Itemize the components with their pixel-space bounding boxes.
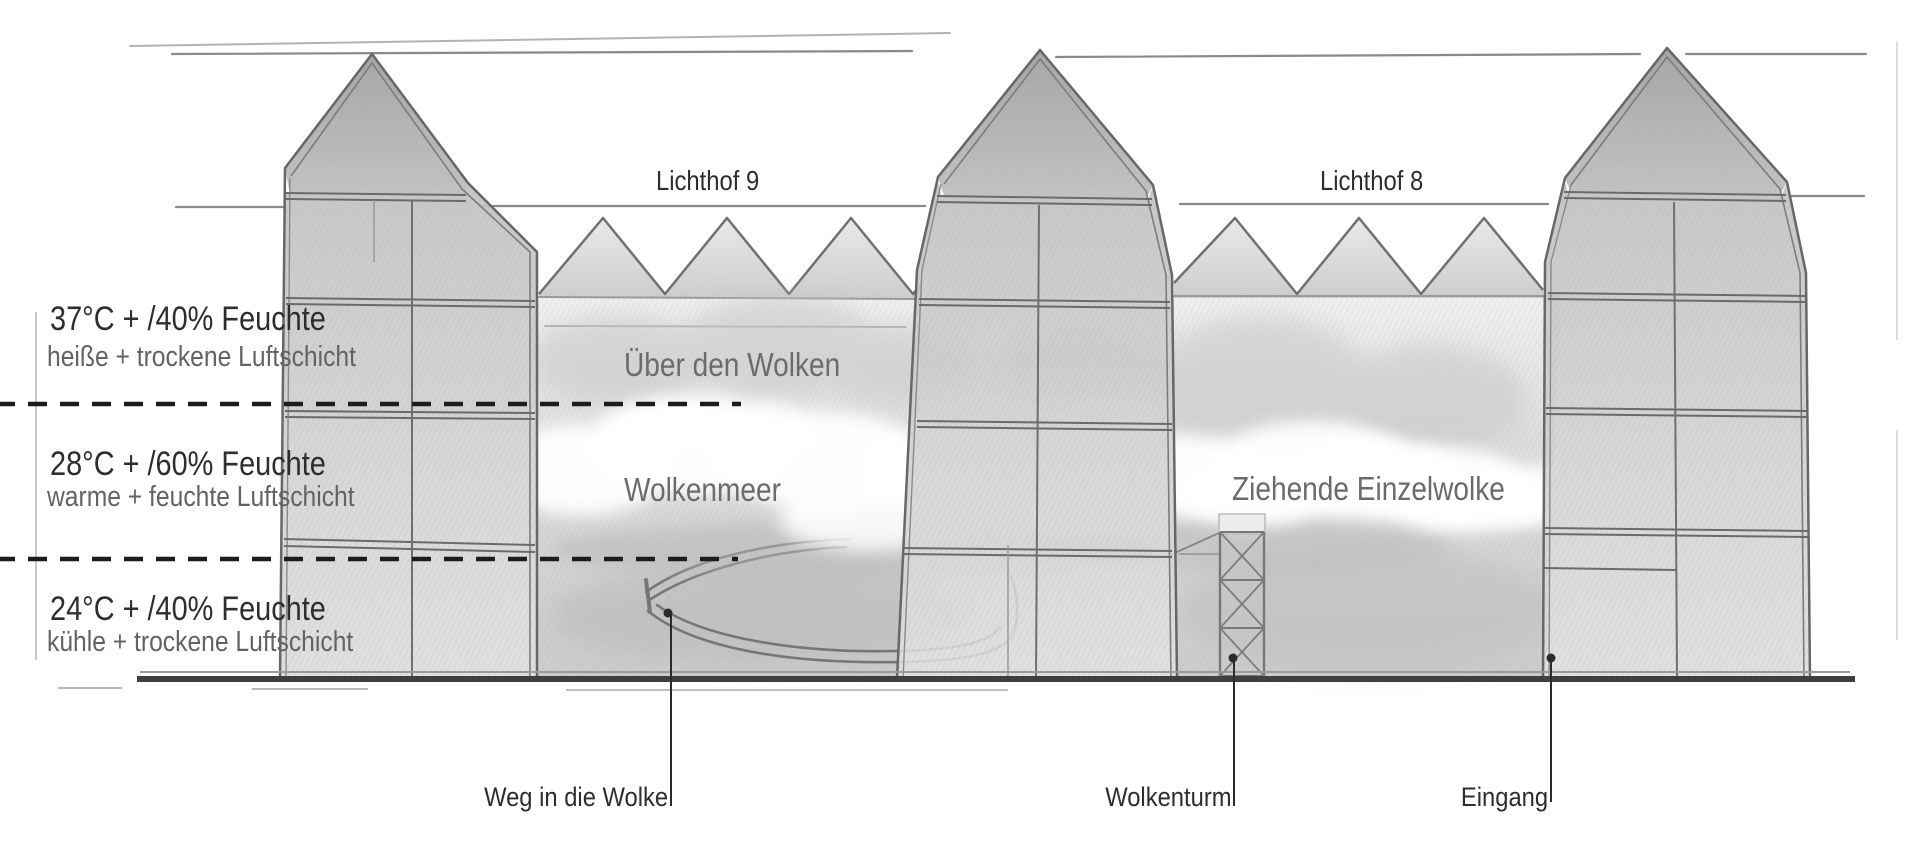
atrium-label-lichthof-8: Lichthof 8: [1320, 166, 1423, 196]
diagram-drawing: [0, 0, 1920, 853]
air-layer-3-temp: 24°C + /40% Feuchte: [50, 591, 326, 628]
air-layer-2-temp: 28°C + /60% Feuchte: [50, 446, 326, 483]
callout-entrance: Eingang: [1461, 783, 1548, 812]
callout-cloud-tower: Wolkenturm: [1106, 783, 1232, 812]
air-layer-1-temp: 37°C + /40% Feuchte: [50, 301, 326, 338]
air-layer-1-description: heiße + trockene Luftschicht: [47, 342, 356, 373]
zone-label-single-cloud: Ziehende Einzelwolke: [1232, 471, 1505, 507]
sawtooth-roof-lichthof-9: [539, 218, 922, 298]
air-layer-3-description: kühle + trockene Luftschicht: [47, 627, 353, 658]
zone-label-cloud-sea: Wolkenmeer: [624, 472, 781, 508]
section-diagram: 37°C + /40% Feuchte heiße + trockene Luf…: [0, 0, 1920, 853]
zone-label-above-clouds: Über den Wolken: [624, 347, 840, 383]
callout-path-into-cloud: Weg in die Wolke: [484, 783, 668, 812]
sawtooth-roof-lichthof-8: [1174, 218, 1543, 298]
atrium-label-lichthof-9: Lichthof 9: [656, 166, 759, 196]
air-layer-2-description: warme + feuchte Luftschicht: [47, 482, 355, 513]
middle-tower: [897, 50, 1177, 679]
right-tower: [1543, 48, 1810, 679]
